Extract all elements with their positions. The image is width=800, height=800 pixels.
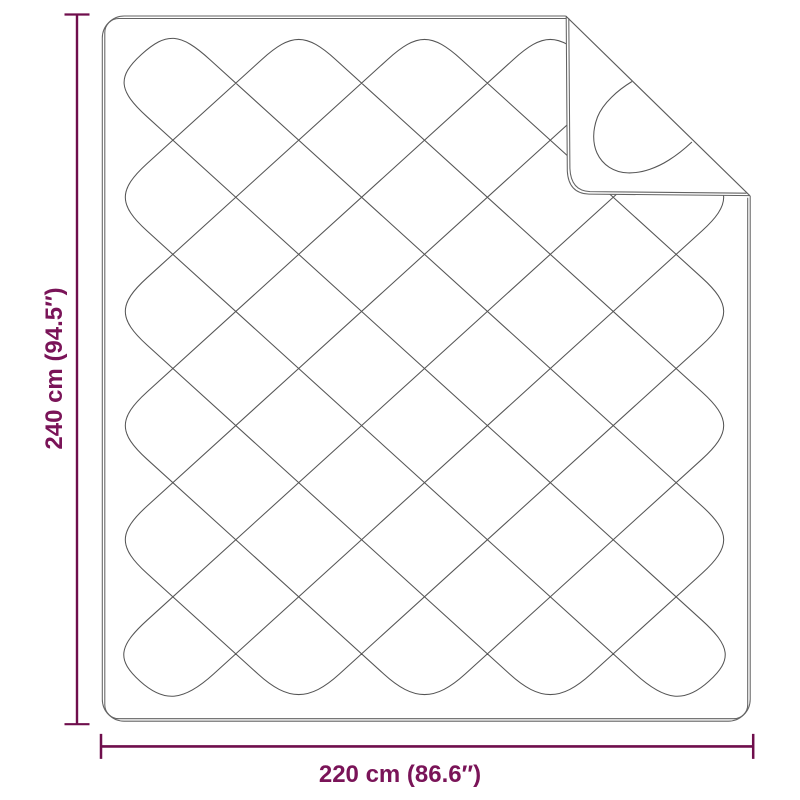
svg-text:240 cm (94.5″): 240 cm (94.5″) bbox=[41, 287, 68, 449]
svg-text:220 cm (86.6″): 220 cm (86.6″) bbox=[319, 761, 481, 788]
